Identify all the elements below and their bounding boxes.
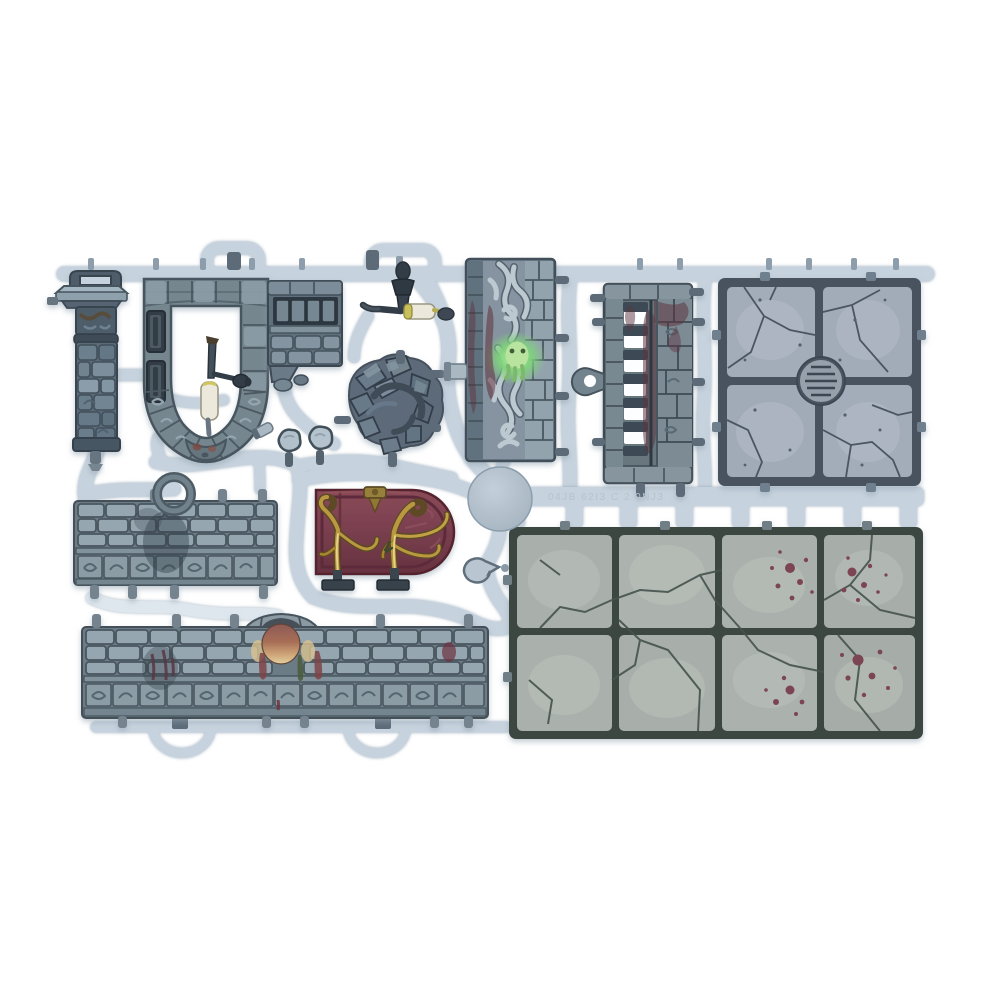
svg-text:04JB 62I3 C 2 0NJ3: 04JB 62I3 C 2 0NJ3 [548,492,665,503]
